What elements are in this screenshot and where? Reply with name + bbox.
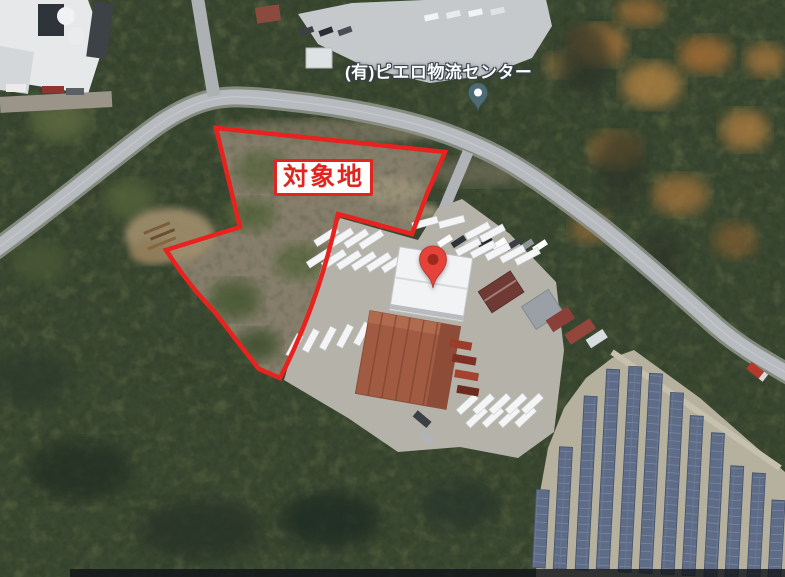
image-edge-strip bbox=[70, 569, 785, 577]
place-pin-body bbox=[469, 83, 488, 111]
place-pin-dot bbox=[474, 89, 482, 97]
satellite-map-canvas[interactable]: (有)ピエロ物流センター 対象地 bbox=[0, 0, 785, 577]
red-pin-dot bbox=[428, 254, 439, 265]
target-site-label: 対象地 bbox=[274, 159, 373, 196]
red-map-pin[interactable] bbox=[418, 245, 448, 289]
rust-roof-building bbox=[355, 311, 460, 410]
satellite-scene bbox=[0, 0, 785, 577]
red-pin-body bbox=[420, 246, 447, 288]
place-pin-icon[interactable] bbox=[467, 82, 489, 112]
place-label[interactable]: (有)ピエロ物流センター bbox=[345, 58, 515, 83]
